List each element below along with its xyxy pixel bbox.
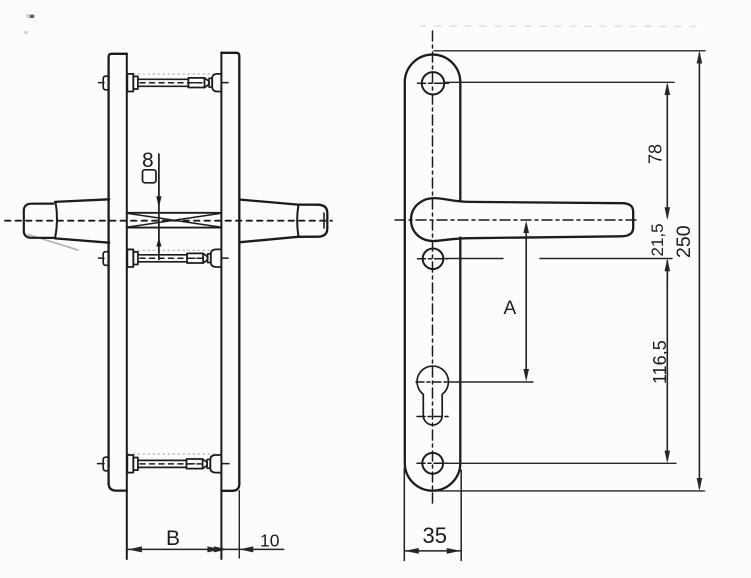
svg-text:116,5: 116,5 (650, 340, 670, 384)
svg-text:35: 35 (423, 523, 447, 548)
svg-text:78: 78 (646, 144, 666, 164)
svg-text:A: A (504, 298, 517, 319)
svg-text:250: 250 (673, 225, 695, 258)
svg-text:B: B (166, 527, 180, 550)
svg-text:8: 8 (142, 149, 154, 172)
svg-text:10: 10 (260, 531, 280, 551)
svg-text:21,5: 21,5 (648, 223, 667, 256)
